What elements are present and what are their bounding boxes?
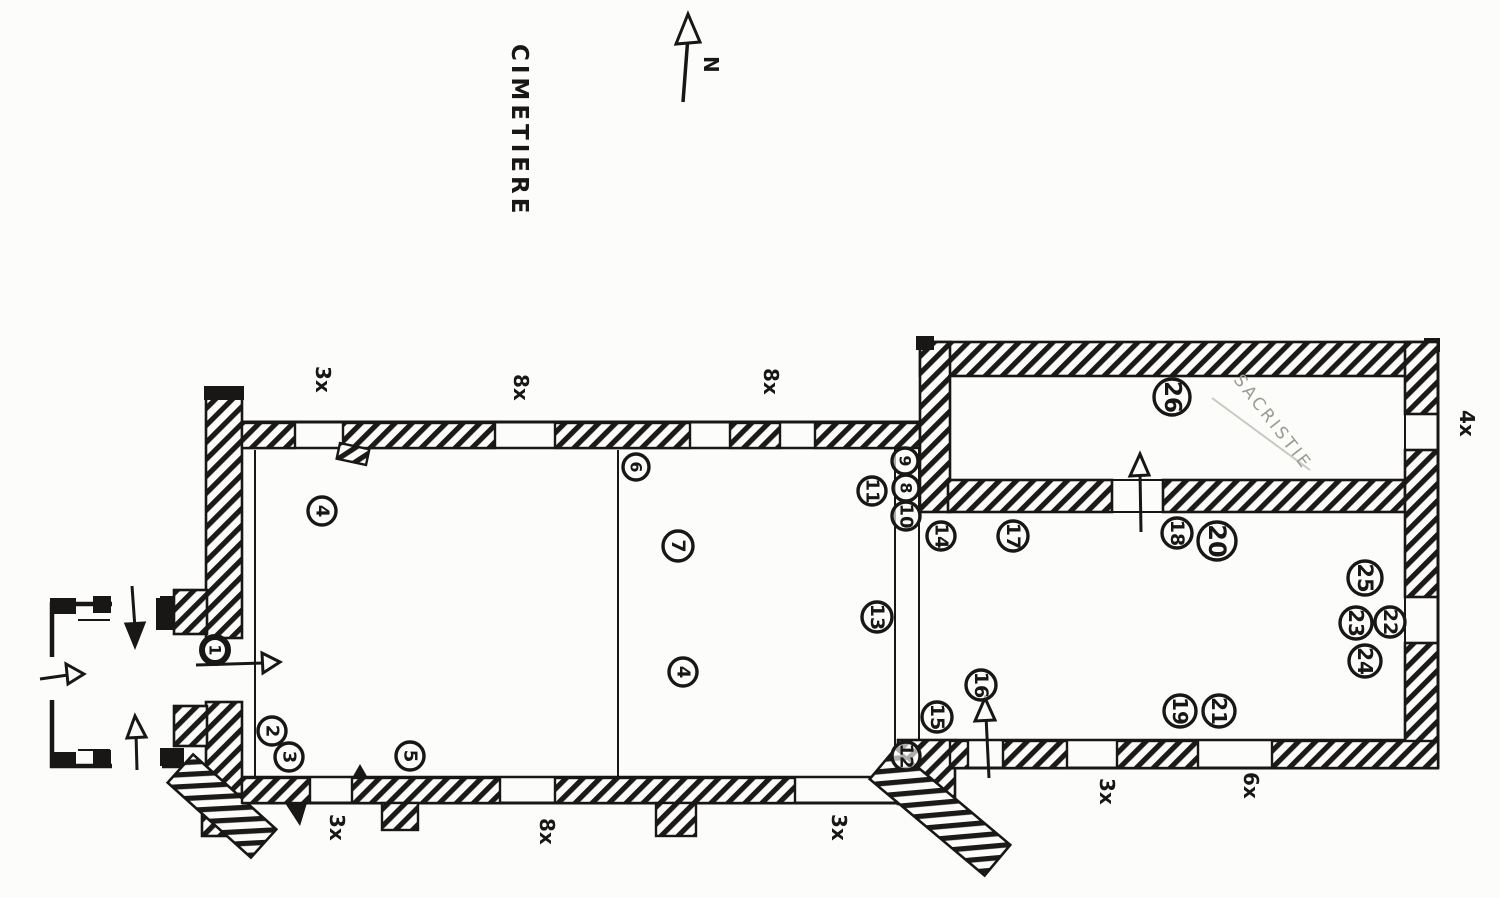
photo-marker: 3 (275, 743, 303, 771)
photo-marker-number: 24 (1353, 647, 1377, 675)
photo-marker-number: 2 (262, 725, 283, 738)
scanned-floor-plan-sheet: N CIMETIERE (0, 0, 1500, 898)
sacristy-door-arrow (1130, 454, 1149, 532)
photo-marker-number: 1 (206, 644, 225, 655)
porch-west-entry-arrow (40, 664, 84, 684)
photo-marker-number: 15 (926, 704, 948, 730)
photo-marker: 14 (927, 522, 955, 550)
photo-marker: 11 (858, 477, 886, 505)
photo-marker-number: 20 (1203, 524, 1231, 557)
photo-marker-number: 16 (970, 672, 992, 698)
photo-marker-number: 8 (897, 482, 916, 493)
photo-marker: 13 (862, 602, 892, 632)
photo-marker-number: 25 (1353, 563, 1377, 592)
photo-marker: 8 (893, 475, 919, 501)
photo-marker: 4 (308, 497, 336, 525)
north-label: N (699, 56, 723, 73)
photo-marker: 21 (1203, 695, 1235, 727)
photo-marker-number: 4 (673, 666, 694, 679)
photo-marker: 19 (1164, 695, 1196, 727)
photo-marker-number: 10 (896, 503, 917, 528)
photo-marker: 9 (892, 448, 918, 474)
photo-marker: 26 (1154, 379, 1190, 415)
photo-marker-number: 4 (312, 505, 333, 518)
nave-north-wall (242, 422, 920, 465)
photo-marker-number: 26 (1159, 381, 1185, 413)
facade-photo-count-label: 3x (1095, 778, 1119, 805)
corner-blob-nw (916, 336, 934, 350)
photo-marker-number: 7 (667, 539, 689, 552)
photo-marker: 1 (202, 637, 228, 663)
photo-marker: 10 (892, 502, 920, 530)
photo-marker-number: 21 (1207, 697, 1231, 725)
photo-marker-number: 6 (627, 461, 646, 472)
facade-photo-count-label: 3x (311, 366, 335, 393)
photo-marker: 7 (663, 531, 693, 561)
photo-marker: 5 (396, 742, 424, 770)
photo-marker: 25 (1348, 561, 1382, 595)
photo-marker: 22 (1375, 607, 1405, 637)
photo-marker: 17 (998, 521, 1028, 551)
photo-marker: 16 (966, 670, 996, 700)
photo-marker-number: 17 (1002, 523, 1024, 549)
east-wall (1405, 342, 1438, 768)
photo-marker: 23 (1340, 607, 1372, 639)
photo-marker-number: 14 (931, 523, 952, 548)
choir-south-door-arrow (975, 698, 995, 778)
porch-south-entry-arrow (127, 716, 146, 770)
photo-marker: 20 (1198, 522, 1236, 560)
facade-photo-count-label: 4x (1455, 410, 1479, 437)
photo-marker-number: 12 (896, 743, 917, 768)
facade-photo-count-label: 8x (535, 818, 559, 845)
photo-marker: 15 (922, 702, 952, 732)
photo-marker-number: 5 (400, 750, 421, 763)
photo-marker-number: 22 (1379, 609, 1401, 635)
sacristy-walls (920, 342, 1438, 512)
nave-interior-lines (255, 448, 919, 777)
facade-photo-count-label: 8x (509, 374, 533, 401)
sacristy-label: SACRISTIE (1229, 371, 1316, 474)
photo-marker: 24 (1349, 645, 1381, 677)
porch-north-entry-arrow (126, 586, 144, 646)
choir-south-wall (950, 740, 1438, 768)
photo-marker-number: 23 (1344, 609, 1368, 637)
north-arrow: N (676, 14, 723, 102)
photo-marker: 6 (623, 454, 649, 480)
facade-photo-count-label: 6x (1239, 772, 1263, 799)
cemetery-label: CIMETIERE (506, 44, 532, 217)
facade-photo-count-label: 8x (759, 368, 783, 395)
tower-top-cap (204, 386, 244, 400)
photo-marker-number: 3 (279, 751, 300, 764)
photo-marker-number: 13 (866, 604, 888, 630)
photo-marker: 2 (258, 717, 286, 745)
photo-marker-number: 9 (896, 455, 915, 466)
photo-marker-number: 11 (862, 478, 883, 503)
photo-marker-number: 19 (1168, 697, 1192, 725)
photo-marker: 12 (892, 742, 920, 770)
floor-plan-drawing: N CIMETIERE (0, 0, 1500, 898)
facade-photo-count-label: 3x (827, 814, 851, 841)
photo-marker-number: 18 (1166, 520, 1188, 546)
facade-photo-count-label: 3x (325, 814, 349, 841)
photo-marker: 4 (669, 658, 697, 686)
photo-marker: 18 (1162, 518, 1192, 548)
